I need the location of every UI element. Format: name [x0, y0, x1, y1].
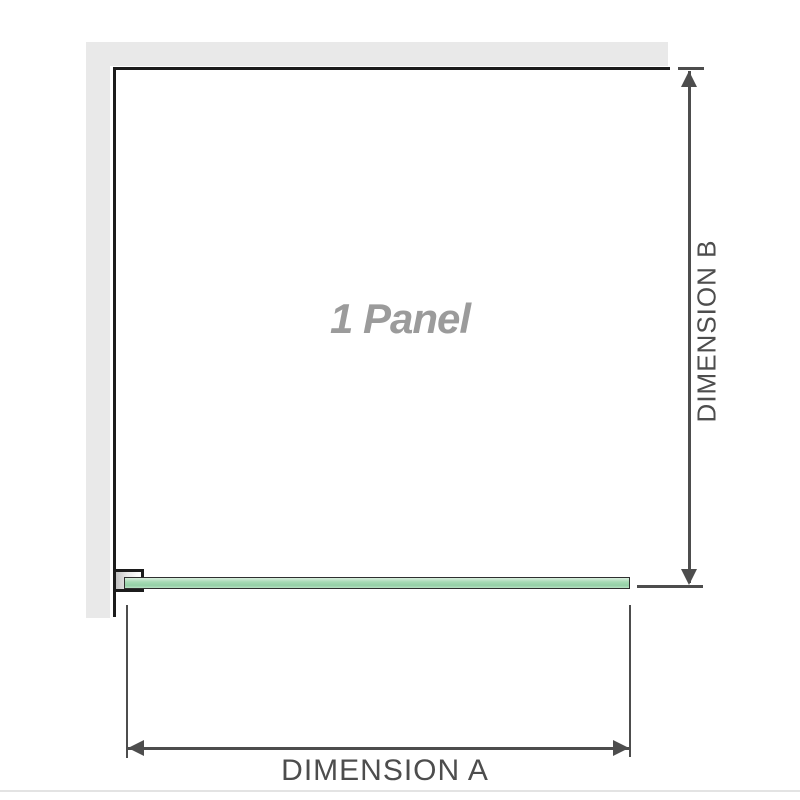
dimension-b-top-tick	[678, 67, 704, 70]
page-baseline-rule	[0, 790, 800, 792]
arrow-right-icon	[613, 740, 629, 756]
dimension-b-label: DIMENSION B	[692, 240, 723, 423]
panel-count-label: 1 Panel	[330, 295, 470, 343]
arrow-up-icon	[681, 71, 697, 87]
glass-panel-top-view	[124, 577, 630, 589]
arrow-down-icon	[681, 569, 697, 585]
panel-top-edge	[113, 67, 670, 70]
dimension-a-line	[128, 747, 629, 750]
dimension-a-right-extension	[629, 605, 631, 757]
arrow-left-icon	[128, 740, 144, 756]
dimension-a-label: DIMENSION A	[281, 754, 489, 788]
dimension-a-left-extension	[126, 605, 128, 758]
panel-left-edge	[113, 67, 116, 617]
wall-left-strip	[86, 42, 110, 618]
wall-top-strip	[86, 42, 668, 66]
dimension-b-bottom-tick	[637, 585, 703, 588]
